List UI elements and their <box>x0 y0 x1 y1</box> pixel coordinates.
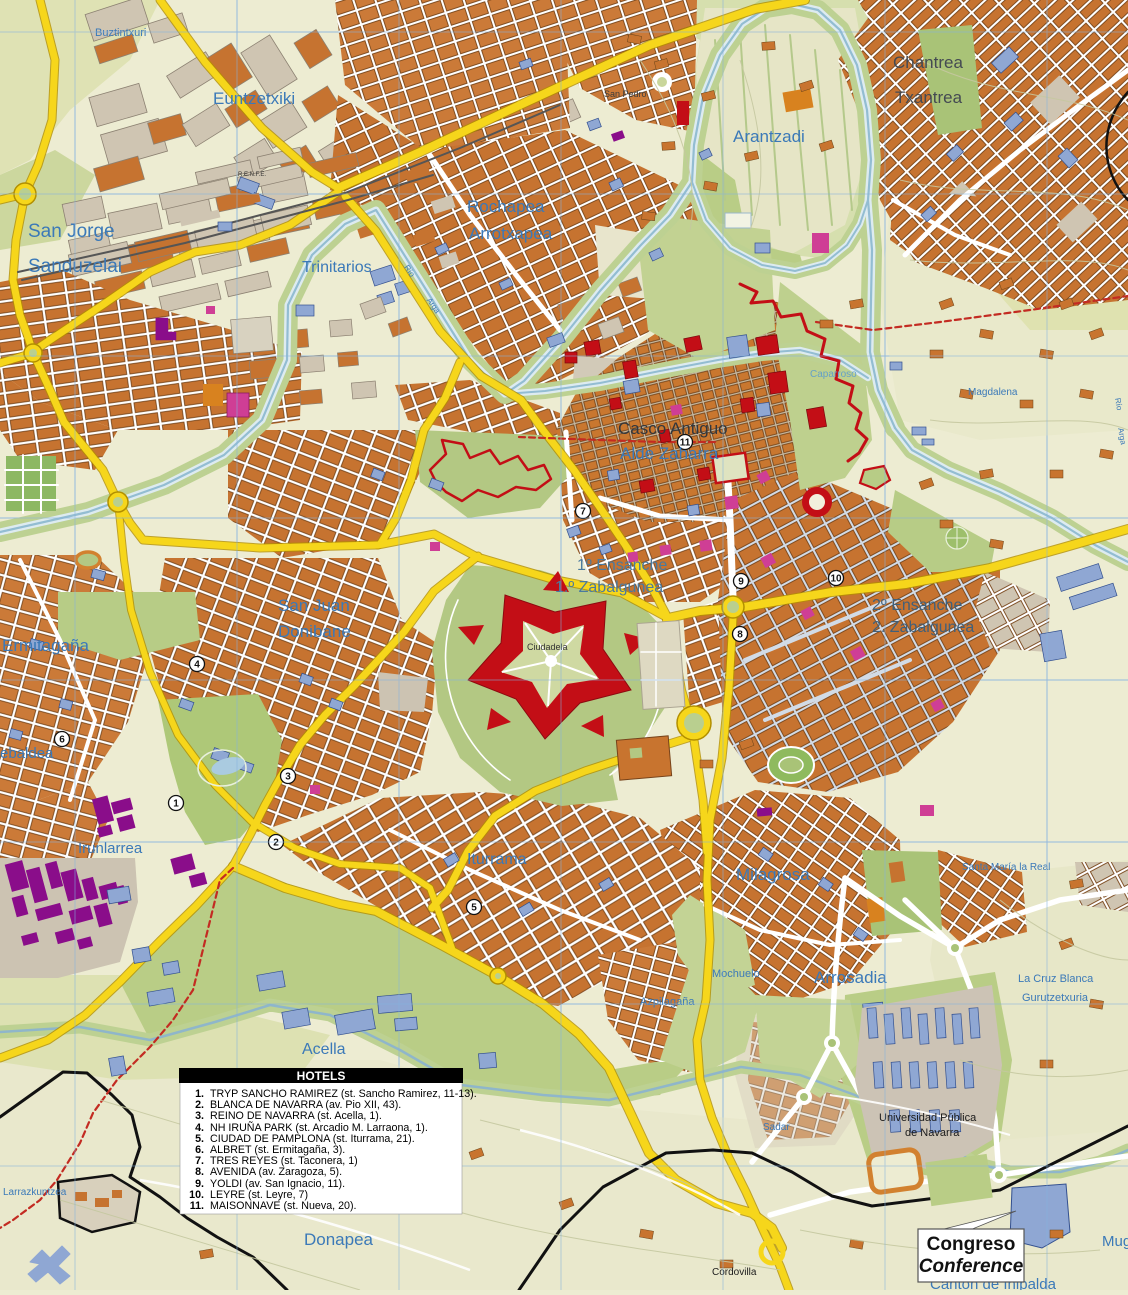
svg-text:Iturrama: Iturrama <box>467 851 527 868</box>
svg-text:2º Ensanche: 2º Ensanche <box>872 597 962 614</box>
svg-text:3.: 3. <box>195 1110 204 1122</box>
svg-text:Milagrosa: Milagrosa <box>736 865 810 884</box>
svg-text:Cordovilla: Cordovilla <box>712 1267 757 1278</box>
svg-text:Arrotxapea: Arrotxapea <box>469 224 553 243</box>
svg-text:Irunlarrea: Irunlarrea <box>78 840 143 857</box>
svg-text:Azpilagaña: Azpilagaña <box>640 996 695 1008</box>
svg-text:Mochuelo: Mochuelo <box>712 968 760 980</box>
svg-text:1.º Zabalgunea: 1.º Zabalgunea <box>555 579 663 596</box>
svg-text:Caparroso: Caparroso <box>810 369 857 380</box>
svg-text:4: 4 <box>194 660 200 671</box>
svg-text:10: 10 <box>830 574 842 585</box>
svg-text:Trinitarios: Trinitarios <box>302 259 372 276</box>
svg-text:Universidad Pública: Universidad Pública <box>879 1112 977 1124</box>
svg-text:Donapea: Donapea <box>304 1230 374 1249</box>
svg-text:MAISONNAVE (st. Nueva, 20).: MAISONNAVE (st. Nueva, 20). <box>210 1200 357 1212</box>
svg-text:Gurutzetxuria: Gurutzetxuria <box>1022 992 1089 1004</box>
svg-text:Rochapea: Rochapea <box>467 197 545 216</box>
svg-text:8.: 8. <box>195 1166 204 1178</box>
svg-text:Chantrea: Chantrea <box>893 53 963 72</box>
svg-text:2: 2 <box>273 838 279 849</box>
svg-text:Larrazkuntzea: Larrazkuntzea <box>3 1187 67 1198</box>
svg-text:9: 9 <box>738 577 744 588</box>
svg-text:Arantzadi: Arantzadi <box>733 127 805 146</box>
svg-text:Casco Antiguo: Casco Antiguo <box>618 419 728 438</box>
svg-text:6: 6 <box>59 735 65 746</box>
svg-text:Arrosadia: Arrosadia <box>814 968 887 987</box>
svg-text:Mug: Mug <box>1102 1233 1128 1250</box>
svg-text:AVENIDA (av. Zaragoza, 5).: AVENIDA (av. Zaragoza, 5). <box>210 1166 342 1178</box>
svg-text:R.E.N.F.E.: R.E.N.F.E. <box>238 172 266 178</box>
svg-text:Ermitagaña: Ermitagaña <box>2 636 89 655</box>
svg-text:San Juan: San Juan <box>278 596 350 615</box>
svg-text:San Jorge: San Jorge <box>28 221 115 242</box>
svg-text:REINO DE NAVARRA (st. Acella,: REINO DE NAVARRA (st. Acella, 1). <box>210 1110 382 1122</box>
svg-text:ebaldea: ebaldea <box>0 745 54 762</box>
svg-text:1º Ensanche: 1º Ensanche <box>577 557 667 574</box>
svg-text:de Navarra: de Navarra <box>905 1127 960 1139</box>
svg-text:Acella: Acella <box>302 1041 346 1058</box>
svg-text:8: 8 <box>737 630 743 641</box>
svg-text:Santa María la Real: Santa María la Real <box>962 862 1050 873</box>
svg-text:La Cruz Blanca: La Cruz Blanca <box>1018 973 1094 985</box>
svg-text:2. Zabalgunea: 2. Zabalgunea <box>872 619 974 636</box>
svg-text:11.: 11. <box>190 1200 204 1212</box>
svg-text:5: 5 <box>471 903 477 914</box>
svg-text:Sadar: Sadar <box>763 1122 790 1133</box>
svg-text:Conference: Conference <box>919 1256 1024 1277</box>
svg-text:Buztintxuri: Buztintxuri <box>95 27 146 39</box>
svg-text:1: 1 <box>173 799 179 810</box>
svg-text:Txantrea: Txantrea <box>895 88 963 107</box>
svg-text:HOTELS: HOTELS <box>297 1069 346 1083</box>
svg-text:Congreso: Congreso <box>927 1234 1016 1255</box>
svg-text:Donibane: Donibane <box>278 622 351 641</box>
svg-text:San Pedro: San Pedro <box>604 89 647 99</box>
svg-text:7: 7 <box>580 507 586 518</box>
svg-text:Alde Zaharra: Alde Zaharra <box>620 444 719 463</box>
svg-text:Magdalena: Magdalena <box>968 387 1018 398</box>
svg-text:Euntzetxiki: Euntzetxiki <box>213 89 295 108</box>
svg-text:3: 3 <box>285 772 291 783</box>
